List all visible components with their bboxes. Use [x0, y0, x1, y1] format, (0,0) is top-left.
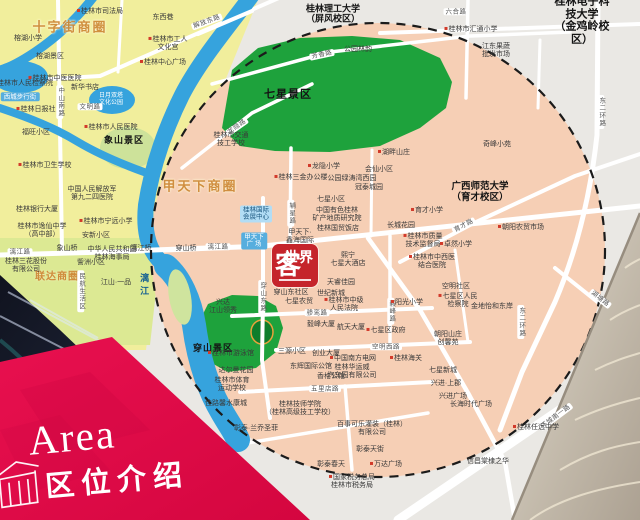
logo-seal-bar: [279, 279, 311, 281]
sun-moon-pagoda-lake: [89, 86, 135, 114]
project-logo: 客 世界: [272, 244, 318, 287]
logo-sub-chars: 世界: [284, 247, 314, 267]
area-banner: Area 区位介绍: [0, 386, 233, 520]
location-map-page: 十字街商圈甲天下商圈联达商圈七星景区穿山景区象山景区桂林理工大学 （屏风校区）桂…: [0, 0, 640, 520]
banner-title-en: Area: [26, 409, 118, 464]
